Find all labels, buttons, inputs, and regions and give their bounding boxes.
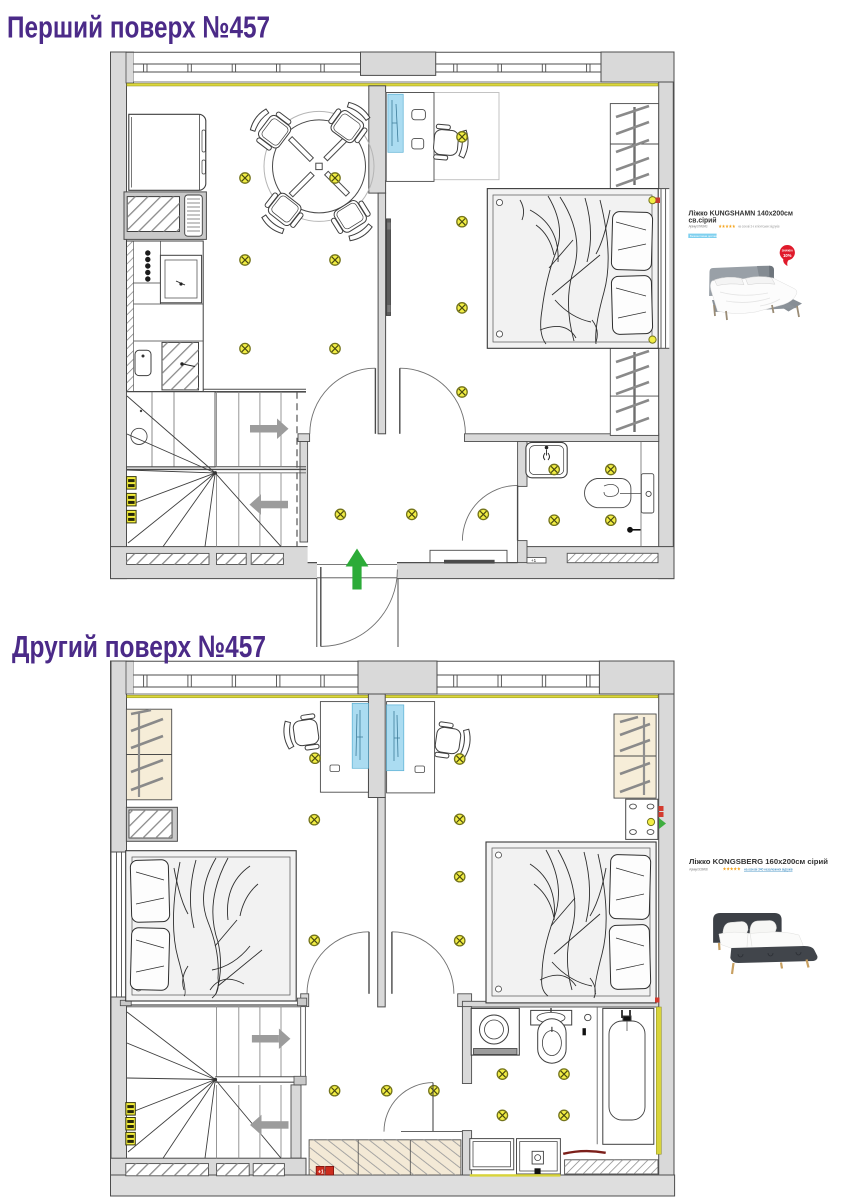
svg-text:Перший поверх №457: Перший поверх №457	[7, 10, 270, 44]
svg-text:Ліжко KONGSBERG 160х200см сіри: Ліжко KONGSBERG 160х200см сірий	[689, 857, 828, 866]
svg-text:★★★★★: ★★★★★	[718, 224, 736, 230]
svg-text:Артикул: 7049043: Артикул: 7049043	[689, 225, 708, 229]
svg-text:на основі 3-х клієнтських відг: на основі 3-х клієнтських відгуків	[738, 225, 780, 229]
svg-text:★★★★★: ★★★★★	[723, 867, 742, 873]
svg-text:Другий поверх №457: Другий поверх №457	[12, 629, 266, 663]
svg-text:+1: +1	[531, 558, 537, 563]
svg-text:+1: +1	[318, 1169, 324, 1175]
svg-text:10%: 10%	[783, 253, 792, 258]
svg-text:св.сірий: св.сірий	[689, 216, 717, 225]
svg-text:на основі 340 незалежних відгу: на основі 340 незалежних відгуків	[744, 867, 793, 871]
svg-text:Безкоштовна доставка: Безкоштовна доставка	[690, 234, 720, 238]
svg-text:Артикул: 9009490: Артикул: 9009490	[689, 867, 708, 871]
